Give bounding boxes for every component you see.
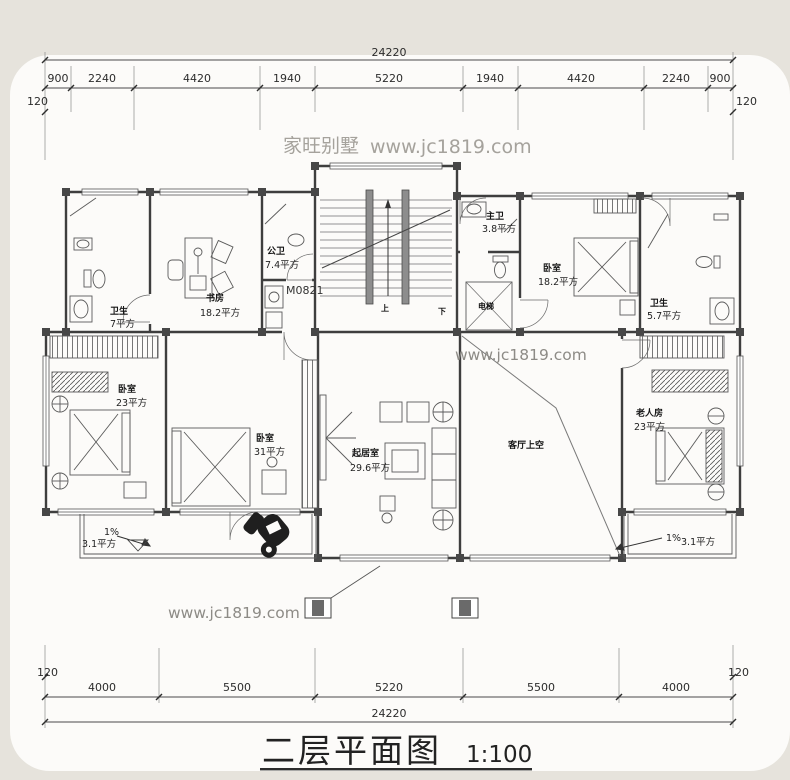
dim-bottom-seg: 5500 [223, 681, 251, 694]
label-door-code: M0821 [286, 284, 324, 297]
label-bath-right-name: 卫生 [650, 297, 668, 309]
balcony-right-slope: 1% [666, 533, 681, 544]
dim-top-seg: 5220 [375, 72, 403, 85]
watermark-url-bottom: www.jc1819.com [168, 604, 300, 622]
elevator-label: 电梯 [478, 301, 494, 311]
dim-bottom-seg: 5220 [375, 681, 403, 694]
stairs-down-label: 下 [438, 307, 446, 316]
dim-top-side-right: 120 [736, 95, 757, 108]
dim-bottom-side-left: 120 [37, 666, 58, 679]
label-elder-name: 老人房 [635, 407, 663, 419]
label-bedroom-mid-area: 31平方 [254, 446, 285, 458]
label-bedroom-left-area: 23平方 [116, 397, 147, 409]
dim-top-seg: 900 [48, 72, 69, 85]
title-text: 二层平面图 [262, 731, 442, 770]
label-bedroom-tr-area: 18.2平方 [538, 276, 578, 288]
dim-top-total: 24220 [372, 46, 407, 59]
label-living-area: 29.6平方 [350, 462, 390, 474]
balcony-right-area: 3.1平方 [681, 536, 715, 548]
label-master-bath-area: 3.8平方 [482, 223, 516, 235]
dim-top-seg: 900 [710, 72, 731, 85]
dim-top-seg: 2240 [88, 72, 116, 85]
title-scale: 1:100 [466, 742, 532, 768]
label-study-area: 18.2平方 [200, 307, 240, 319]
label-bath-left-name: 卫生 [110, 305, 128, 317]
dim-top-seg: 4420 [567, 72, 595, 85]
label-bedroom-mid-name: 卧室 [256, 432, 274, 444]
dim-top-seg: 4420 [183, 72, 211, 85]
label-bedroom-left-name: 卧室 [118, 383, 136, 395]
label-bedroom-tr-name: 卧室 [543, 262, 561, 274]
floorplan-page: 24220 900 2240 4420 1940 5220 1940 4420 … [0, 0, 790, 780]
dim-bottom-seg: 4000 [662, 681, 690, 694]
label-void: 客厅上空 [507, 439, 544, 451]
dim-top-seg: 2240 [662, 72, 690, 85]
dim-bottom-seg: 4000 [88, 681, 116, 694]
label-bath-small-area: 7.4平方 [265, 259, 299, 271]
dim-bottom-seg: 5500 [527, 681, 555, 694]
dim-top-seg: 1940 [476, 72, 504, 85]
stairs-up-label: 上 [381, 303, 389, 313]
dim-bottom-total: 24220 [372, 707, 407, 720]
floorplan-drawing: 24220 900 2240 4420 1940 5220 1940 4420 … [0, 0, 790, 780]
dim-top-side-left: 120 [27, 95, 48, 108]
watermark-brand: 家旺别墅 [283, 135, 359, 157]
balcony-left-area: 3.1平方 [82, 538, 116, 550]
label-master-bath-name: 主卫 [486, 210, 504, 222]
dim-top-seg: 1940 [273, 72, 301, 85]
dim-bottom-side-right: 120 [728, 666, 749, 679]
watermark-url-top: www.jc1819.com [370, 136, 532, 158]
label-bath-small-name: 公卫 [267, 246, 285, 257]
label-elder-area: 23平方 [634, 421, 665, 433]
watermark-url-middle: www.jc1819.com [455, 346, 587, 364]
label-study-name: 书房 [206, 292, 224, 304]
label-bath-right-area: 5.7平方 [647, 310, 681, 322]
title-underline [260, 768, 532, 770]
label-living-name: 起居室 [351, 447, 379, 459]
label-bath-left-area: 7平方 [110, 318, 135, 330]
balcony-left-slope: 1% [104, 527, 119, 538]
